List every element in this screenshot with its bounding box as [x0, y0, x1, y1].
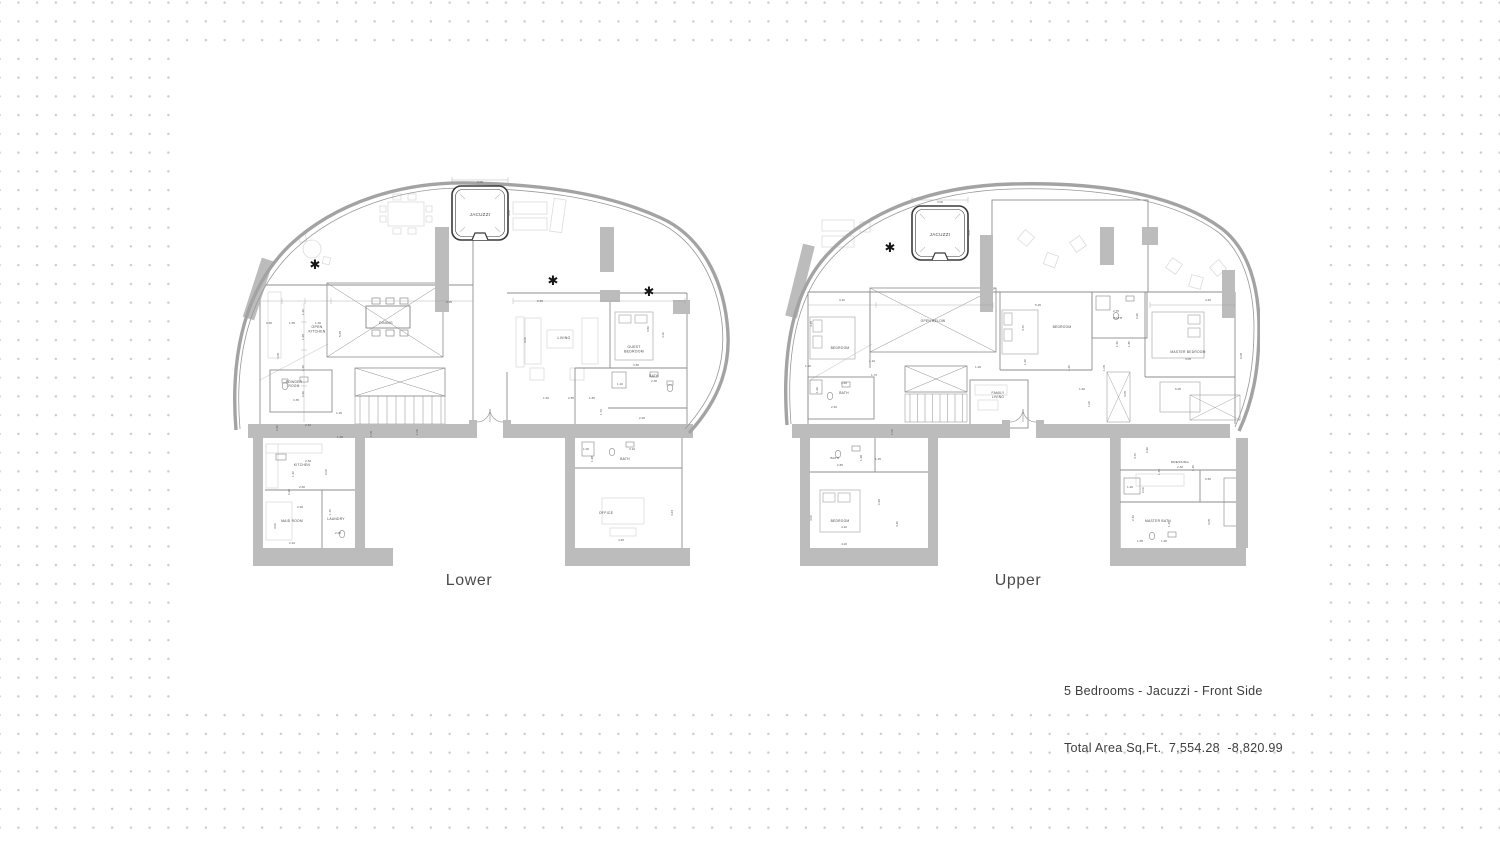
dimension-text: 2.40: [1131, 515, 1135, 521]
dimension-text: 4.25: [809, 321, 813, 327]
dimension-text: 3.10: [629, 447, 635, 451]
dimension-text: 5.25: [1035, 303, 1041, 307]
dimension-text: 0.60: [275, 425, 279, 431]
dimension-text: 1.60: [1079, 387, 1085, 391]
palm-star-icon: ✱: [644, 284, 655, 299]
plan-annotation: 5 Bedrooms - Jacuzzi - Front Side Total …: [1064, 644, 1283, 796]
room-label: BATH: [1113, 316, 1122, 320]
dimension-text: 1.00: [1087, 401, 1091, 407]
dimension-text: 1.10: [869, 359, 875, 363]
dimension-text: 1.80: [1127, 341, 1131, 347]
dimension-text: 6.08: [1239, 353, 1243, 359]
dimension-text: 1.20: [1067, 365, 1071, 371]
room-label: OFFICE: [599, 511, 614, 515]
dimension-text: 1.98: [859, 455, 863, 461]
dimension-text: 1.55: [1137, 539, 1143, 543]
dimension-text: 2.30: [1177, 465, 1183, 469]
dimension-text: 2.20: [639, 416, 645, 420]
annotation-area: Total Area Sq.Ft. 7,554.28 -8,820.99: [1064, 739, 1283, 758]
room-label: BATH: [839, 391, 849, 395]
dining-and-stairs: [327, 283, 445, 424]
dimension-text: 1.25: [336, 411, 342, 415]
dimension-text: 0.90: [287, 489, 291, 495]
room-label: MAID ROOM: [281, 519, 303, 523]
room-label: OPENKITCHEN: [308, 325, 325, 333]
room-label: LAUNDRY: [327, 517, 345, 521]
room-label: DRESSING: [1171, 460, 1190, 464]
dimension-text: 1.00: [890, 429, 894, 435]
furniture-sketches: [810, 220, 1226, 486]
partition-walls: [260, 227, 687, 548]
dimension-text: 4.23: [670, 510, 674, 516]
room-label: LIVING: [558, 336, 571, 340]
room-label: BATH: [649, 374, 659, 378]
dimension-text: 3.05: [1123, 391, 1127, 397]
dimension-text: 2.65: [568, 396, 574, 400]
dimension-text: 1.80: [589, 396, 595, 400]
dimension-text: 2.40: [831, 405, 837, 409]
dimension-text: 2.10: [289, 541, 295, 545]
annotation-title: 5 Bedrooms - Jacuzzi - Front Side: [1064, 682, 1283, 701]
palm-star-icon: ✱: [885, 240, 896, 255]
dimension-lines: [808, 197, 1235, 308]
dimension-text: 6.05: [1175, 387, 1181, 391]
room-label: MASTER BEDROOM: [1170, 350, 1205, 354]
dimension-text: 1.55: [289, 321, 295, 325]
dimension-text: 3.70: [1021, 325, 1025, 331]
dimension-text: 1.60: [543, 396, 549, 400]
dimension-text: 2.00: [324, 469, 328, 475]
dimension-text: 1.20: [1023, 359, 1027, 365]
caption-upper: Upper: [958, 572, 1078, 590]
dimension-text: 3.50: [633, 363, 639, 367]
dimension-text: 1.30: [315, 321, 321, 325]
dimension-text: 0.65: [877, 499, 881, 505]
dimension-text: 2.75: [1113, 309, 1119, 313]
dimension-text: 2.40: [305, 423, 311, 427]
dimension-text: 8.65: [537, 299, 543, 303]
dimension-text: 3.00: [967, 230, 971, 236]
dimension-text: 2.08: [335, 531, 341, 535]
dimension-text: 2.30: [651, 379, 657, 383]
bath-fixtures: [276, 372, 673, 538]
dimension-text: 3.00: [937, 200, 943, 204]
plan-text-layer: JACUZZIBEDROOMOPEN BELOWBATHFAMILYLIVING…: [805, 200, 1243, 546]
dimension-text: 1.20: [975, 365, 981, 369]
dimension-text: 3.00: [477, 180, 483, 184]
room-label: FAMILYLIVING: [992, 391, 1006, 399]
room-label: BEDROOM: [831, 519, 850, 523]
dimension-text: 3.00: [507, 210, 511, 216]
dimension-text: 1.60: [1115, 341, 1119, 347]
caption-lower: Lower: [409, 572, 529, 590]
dimension-text: 1.40: [291, 471, 295, 477]
dimension-text: 1.10: [617, 382, 623, 386]
room-label: POWDERROOM: [286, 380, 303, 388]
dimension-text: 1.00: [583, 447, 589, 451]
dimension-text: 4.05: [1185, 357, 1191, 361]
dimension-text: 4.10: [661, 332, 665, 338]
room-label: DINING: [379, 321, 393, 325]
dimension-text: 2.00: [1141, 487, 1145, 493]
room-label: OPEN BELOW: [921, 319, 946, 323]
room-label: BATH: [620, 457, 630, 461]
dimension-text: 1.70: [328, 509, 332, 515]
dimension-text: 0.60: [1205, 477, 1211, 481]
dimension-text: 2.40: [1191, 465, 1195, 471]
dimension-text: 3.40: [841, 381, 847, 385]
dimension-text: 4.20: [841, 525, 847, 529]
dimension-text: 1.90: [1161, 539, 1167, 543]
dimension-text: 4.05: [276, 353, 280, 359]
furniture-sketches: [260, 194, 644, 540]
floor-plan-lower: JACUZZIOPENKITCHENDININGLIVINGGUESTBEDRO…: [230, 172, 730, 572]
dimension-text: 3.05: [1207, 519, 1211, 525]
dimension-text: 0.60: [301, 391, 305, 397]
room-label: JACUZZI: [930, 232, 951, 237]
dimension-text: 2.90: [1135, 313, 1139, 319]
palm-star-icon: ✱: [310, 257, 321, 272]
dimension-text: 1.05: [1102, 365, 1106, 371]
room-label: KITCHEN: [294, 463, 311, 467]
dimension-text: 3.00: [273, 523, 277, 529]
unit-outline: [786, 184, 1259, 431]
room-label: BEDROOM: [1053, 325, 1072, 329]
room-label: BEDROOM: [831, 346, 850, 350]
floorplan-sheet: JACUZZIOPENKITCHENDININGLIVINGGUESTBEDRO…: [0, 0, 1500, 842]
dimension-text: 1.65: [301, 334, 305, 340]
dimension-text: 5.25: [338, 331, 342, 337]
dimension-text: 1.20: [301, 365, 305, 371]
dimension-text: 2.60: [299, 485, 305, 489]
dimension-text: 2.90: [297, 505, 303, 509]
dimension-text: 3.40: [1205, 298, 1211, 302]
dimension-text: 3.40: [895, 521, 899, 527]
dimension-text: 1.28: [337, 435, 343, 439]
entry-door: [477, 409, 503, 422]
dimension-text: 1.73: [871, 373, 877, 377]
dimension-text: 3.40: [839, 298, 845, 302]
dimension-text: 3.70: [1133, 453, 1137, 459]
dimension-text: 1.90: [815, 387, 819, 393]
dimension-text: 1.40: [1167, 521, 1171, 527]
structural-walls: [243, 227, 693, 566]
dimension-text: 4.45: [618, 538, 624, 542]
dimension-text: 1.20: [301, 309, 305, 315]
dimension-text: 0.95: [446, 300, 452, 304]
dimension-text: 1.20: [805, 364, 811, 368]
dimension-text: 1.25: [875, 457, 881, 461]
dimension-text: 1.00: [415, 429, 419, 435]
dimension-text: 4.00: [809, 515, 813, 521]
dimension-text: 4.20: [841, 542, 847, 546]
dimension-text: 3.35: [293, 398, 299, 402]
dimension-text: 2.80: [837, 463, 843, 467]
dimension-text: 0.65: [266, 321, 272, 325]
room-label: JACUZZI: [470, 212, 491, 217]
dimension-text: 1.72: [599, 409, 603, 415]
structural-walls: [785, 227, 1248, 566]
dimension-text: 9.00: [523, 337, 527, 343]
dimension-text: 2.36: [305, 459, 311, 463]
floor-plan-upper: JACUZZIBEDROOMOPEN BELOWBATHFAMILYLIVING…: [780, 172, 1260, 572]
dimension-text: 1.40: [1157, 469, 1161, 475]
dimension-text: 1.05: [369, 431, 373, 437]
dimension-text: 0.60: [1145, 447, 1149, 453]
room-label: GUESTBEDROOM: [624, 345, 644, 353]
palm-star-icon: ✱: [548, 273, 559, 288]
dimension-text: 1.20: [1127, 485, 1133, 489]
dimension-text: 3.50: [646, 326, 650, 332]
open-below-and-stairs: [870, 288, 1240, 422]
room-label: BATH: [830, 456, 839, 460]
dimension-text: 1.98: [590, 456, 594, 462]
entry-door: [1010, 409, 1036, 422]
